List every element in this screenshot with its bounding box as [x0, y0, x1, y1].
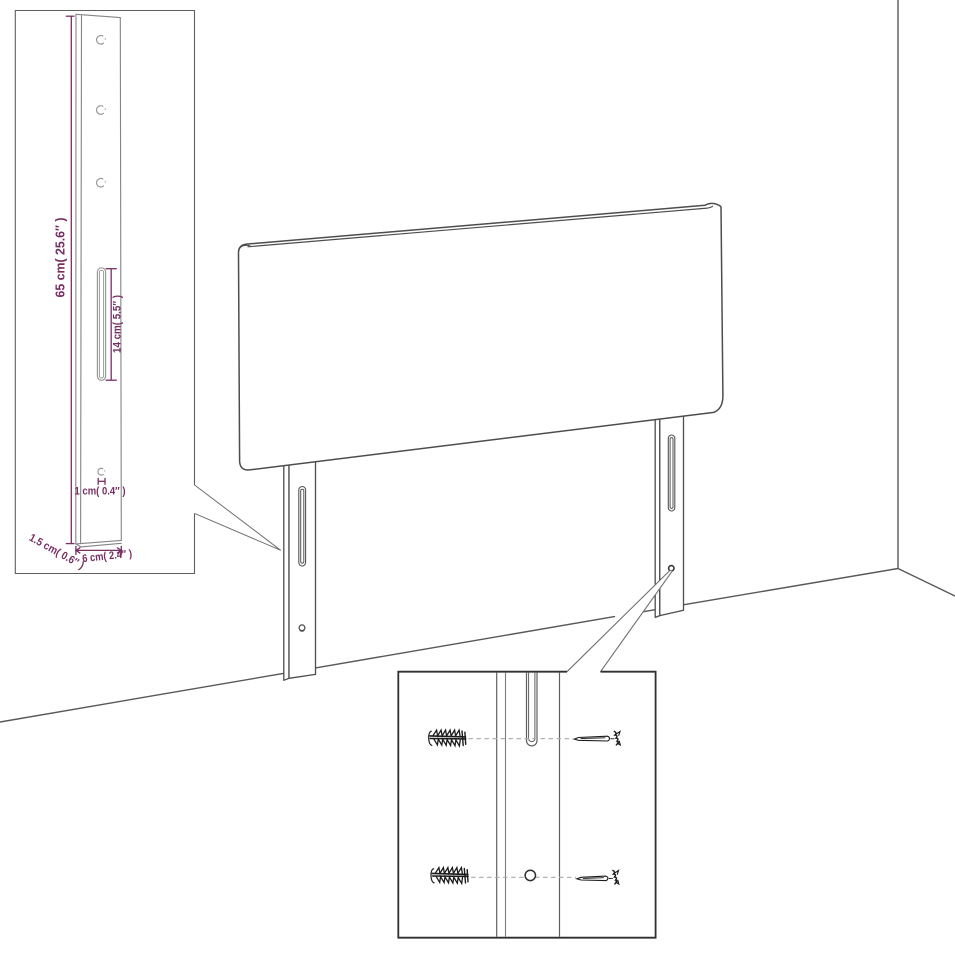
- svg-text:65 cm( 25.6″ ): 65 cm( 25.6″ ): [53, 218, 68, 298]
- svg-text:1 cm( 0.4″ ): 1 cm( 0.4″ ): [75, 486, 126, 498]
- svg-text:14 cm( 5.5″ ): 14 cm( 5.5″ ): [112, 295, 124, 353]
